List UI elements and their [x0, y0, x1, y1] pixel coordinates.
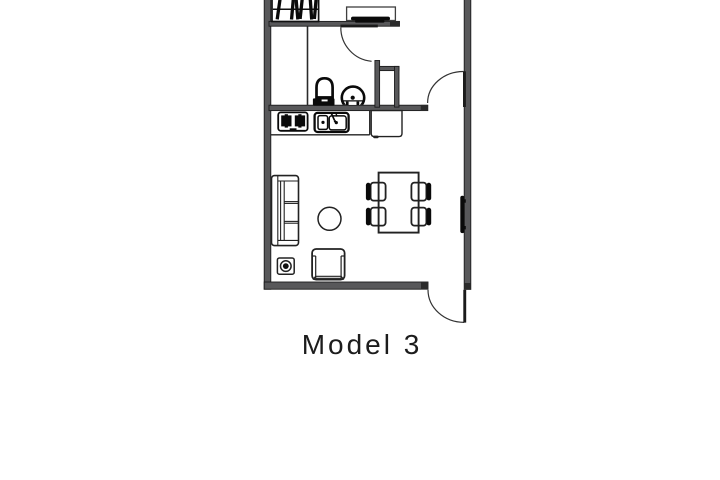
svg-text:Model 3: Model 3 — [302, 329, 423, 360]
